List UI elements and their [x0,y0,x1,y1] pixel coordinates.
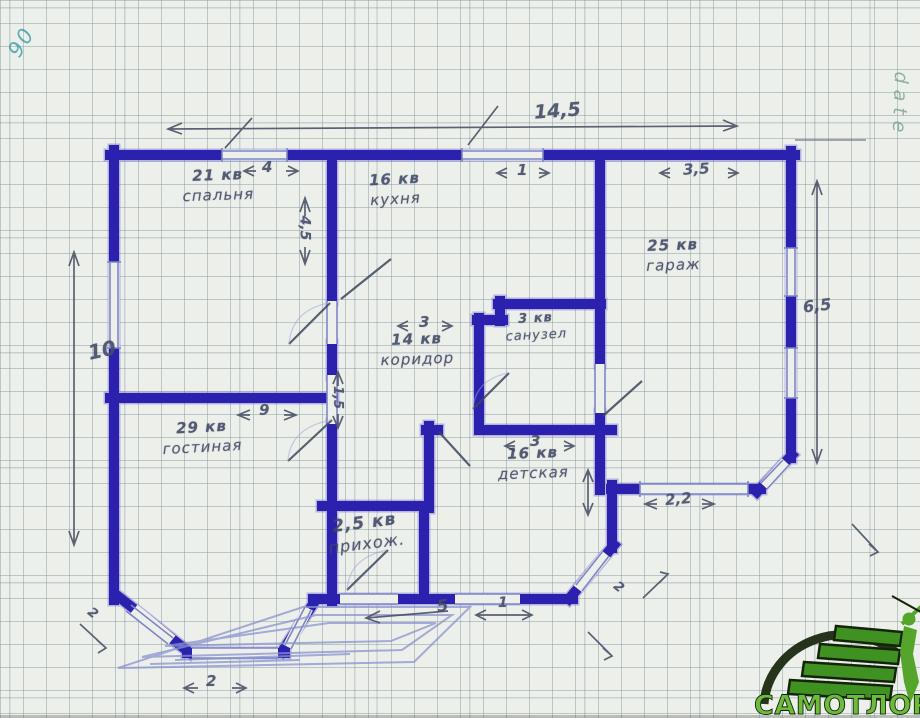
dim-porch-step: 1 [498,595,508,611]
dim-kitchen-top: 1 [517,161,527,179]
dim-living-width: 9 [259,401,269,419]
room-label-bathroom: 3 кв санузел [485,308,587,347]
wall-layer [110,150,795,653]
room-name: детская [478,462,589,485]
dim-corridor-width: 3 [419,313,429,331]
room-name: коридор [362,348,473,371]
side-note-date: date [888,71,912,139]
graph-paper-sheet: 21 кв спальня 16 кв кухня 25 кв гараж 14… [0,0,920,718]
dim-kids-width: 3 [530,432,540,450]
room-label-kitchen: 16 кв кухня [339,167,451,212]
logo-text: САМОТЛОР [754,690,920,718]
room-label-bedroom: 21 кв спальня [157,164,278,207]
samotlor-logo: САМОТЛОР [752,590,920,718]
dim-bay-window: 2 [206,672,216,690]
dim-garage-width: 3,5 [683,159,710,178]
room-name: гараж [618,254,729,277]
dim-garage-door: 2,2 [664,489,692,509]
dim-kitchen-depth: 4,5 [296,216,312,241]
logo-steps [788,626,902,700]
logo-graphic: САМОТЛОР [752,590,920,718]
room-label-living: 29 кв гостиная [141,415,263,460]
room-label-corridor: 14 кв коридор [361,328,472,371]
dim-right-height: 6,5 [802,295,832,317]
room-label-garage: 25 кв гараж [617,234,728,277]
room-name: спальня [158,183,279,207]
dim-total-width: 14,5 [533,98,581,123]
dim-corridor-door: 1,5 [330,386,345,409]
dim-bedroom-window: 4 [262,158,272,176]
